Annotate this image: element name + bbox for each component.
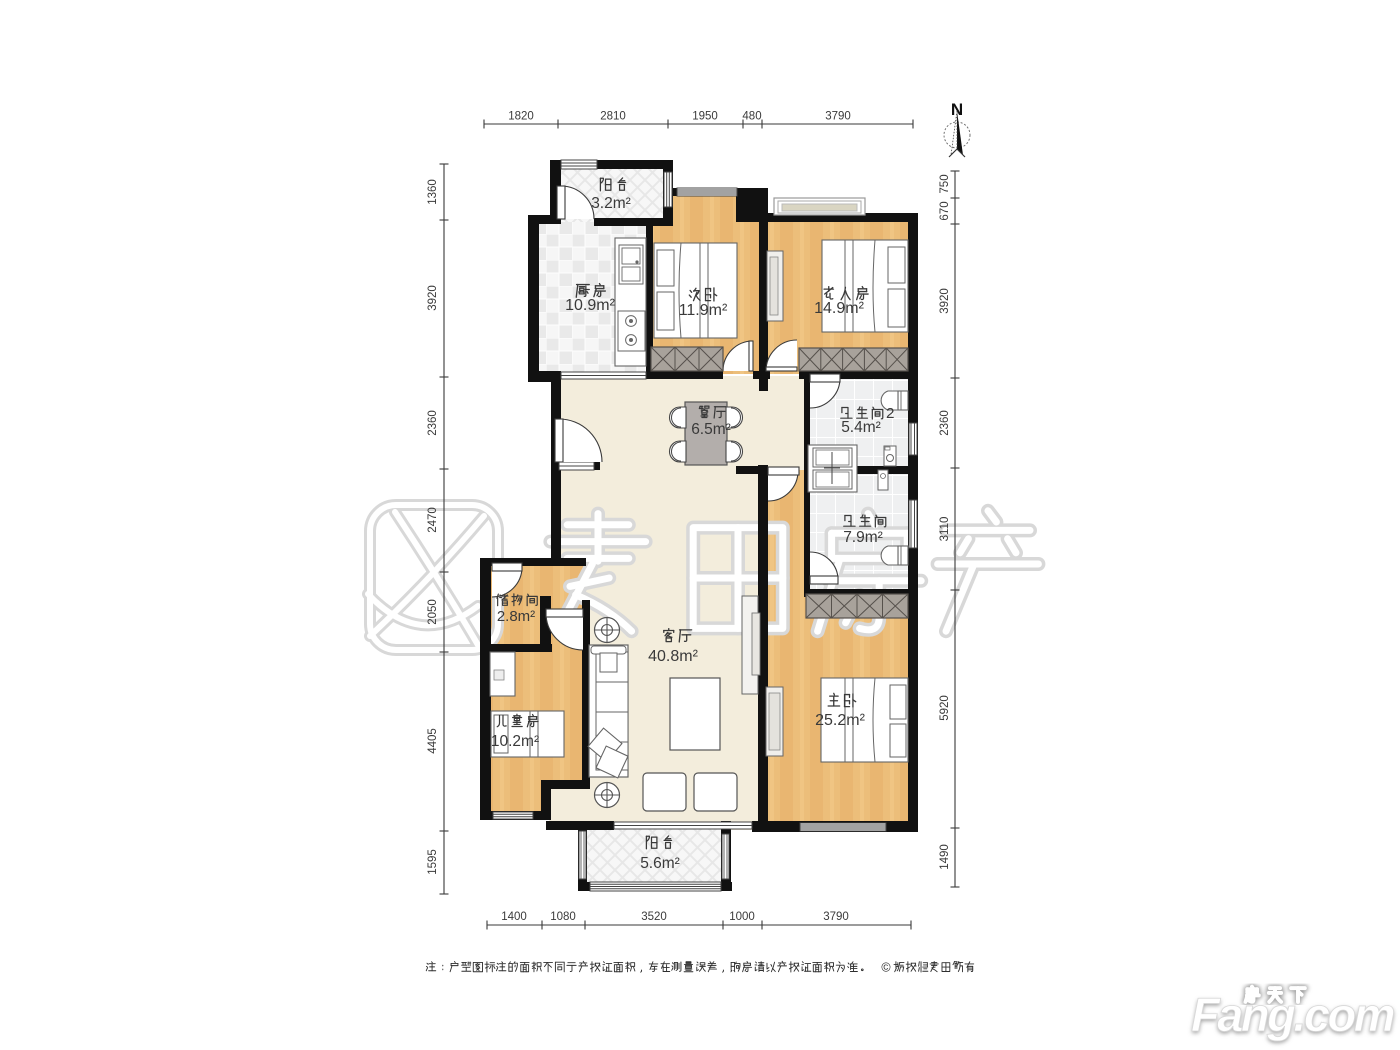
svg-text:1000: 1000	[729, 911, 755, 923]
svg-text:4405: 4405	[427, 728, 439, 754]
svg-text:750: 750	[939, 174, 951, 193]
svg-text:2: 2	[886, 405, 894, 422]
svg-text:3.2m²: 3.2m²	[591, 195, 631, 212]
svg-text:2810: 2810	[600, 111, 626, 123]
svg-text:2360: 2360	[939, 410, 951, 436]
svg-text:3790: 3790	[825, 111, 851, 123]
svg-text:2470: 2470	[427, 507, 439, 533]
svg-text:1360: 1360	[427, 179, 439, 205]
svg-text:2050: 2050	[427, 599, 439, 625]
svg-text:25.2m²: 25.2m²	[815, 712, 865, 729]
svg-text:6.5m²: 6.5m²	[691, 421, 731, 438]
svg-text:3520: 3520	[641, 911, 667, 923]
svg-text:Fang.com: Fang.com	[1191, 988, 1394, 1041]
svg-text:480: 480	[742, 111, 761, 123]
svg-text:14.9m²: 14.9m²	[814, 300, 864, 317]
svg-text:2.8m²: 2.8m²	[497, 608, 535, 625]
svg-text:11.9m²: 11.9m²	[679, 302, 728, 319]
svg-text:670: 670	[939, 201, 951, 220]
svg-text:5920: 5920	[939, 695, 951, 721]
svg-text:1080: 1080	[550, 911, 576, 923]
svg-text:2360: 2360	[427, 410, 439, 436]
svg-text:3920: 3920	[427, 285, 439, 311]
svg-text:40.8m²: 40.8m²	[648, 648, 698, 665]
svg-text:1950: 1950	[692, 111, 718, 123]
svg-text:5.4m²: 5.4m²	[841, 419, 881, 436]
svg-text:5.6m²: 5.6m²	[640, 855, 680, 872]
svg-text:1400: 1400	[501, 911, 527, 923]
svg-text:1595: 1595	[427, 849, 439, 875]
svg-text:10.9m²: 10.9m²	[565, 297, 615, 314]
svg-text:1490: 1490	[939, 844, 951, 870]
svg-text:1820: 1820	[508, 111, 534, 123]
svg-text:3110: 3110	[939, 517, 951, 542]
svg-text:7.9m²: 7.9m²	[843, 529, 883, 546]
svg-text:10.2m²: 10.2m²	[491, 733, 539, 750]
svg-text:3920: 3920	[939, 288, 951, 314]
svg-text:3790: 3790	[823, 911, 849, 923]
svg-text:©: ©	[881, 961, 891, 975]
